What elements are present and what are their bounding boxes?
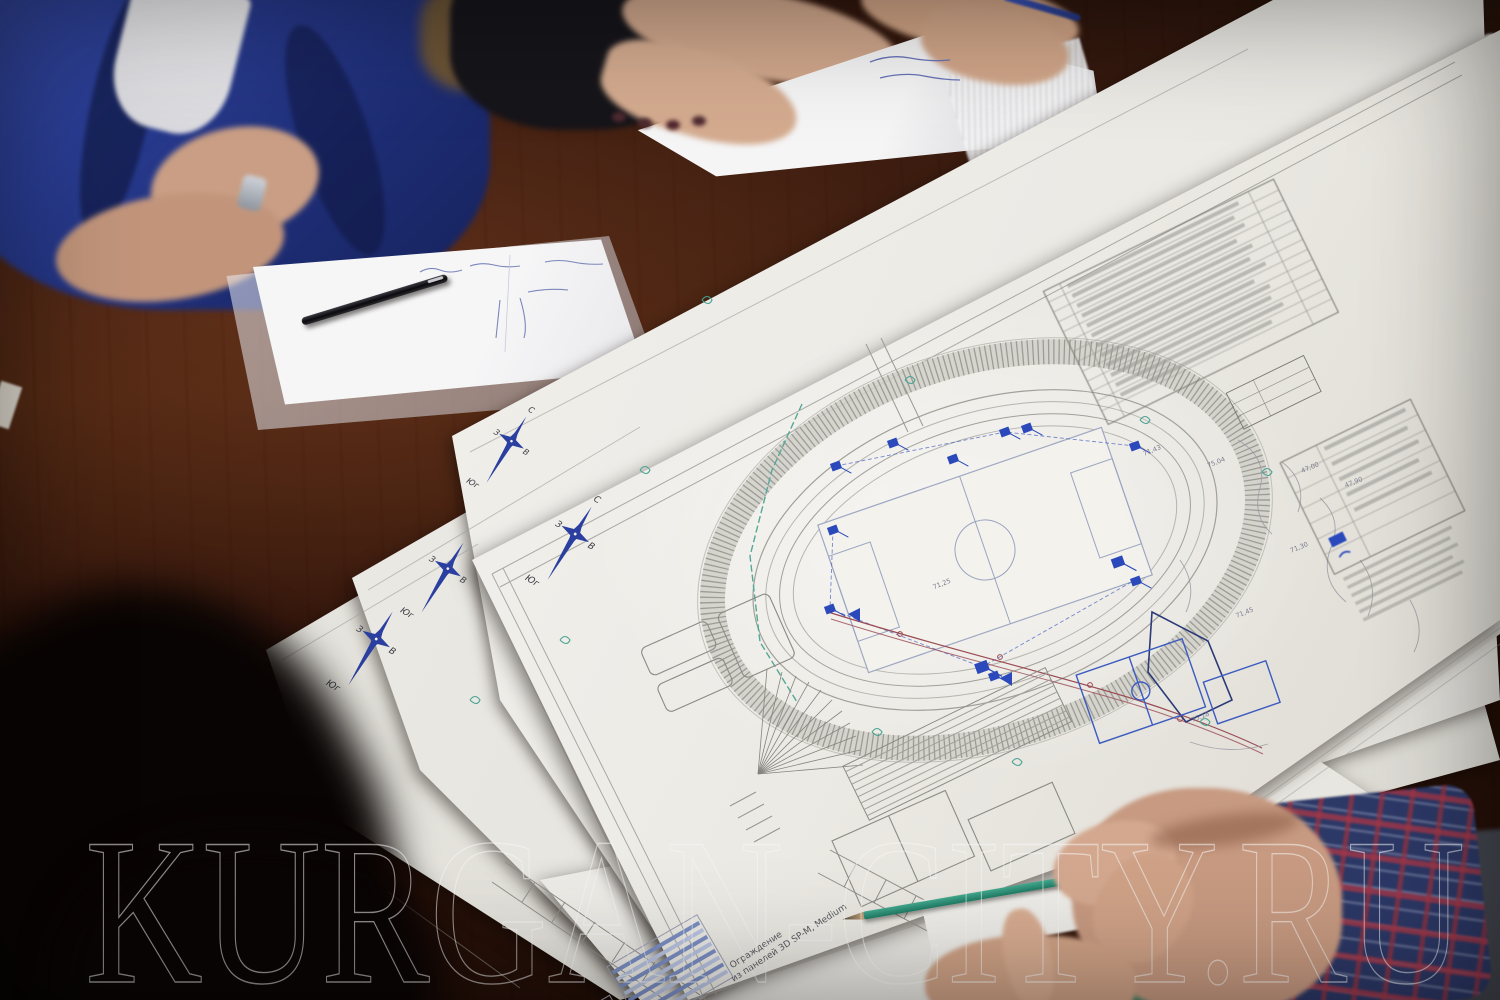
photo-scene: С З В Юг С З В Юг З В Юг З В Юг — [0, 0, 1500, 1000]
nail-polish-dots — [612, 112, 626, 122]
chart-stripe-green — [1458, 49, 1500, 181]
